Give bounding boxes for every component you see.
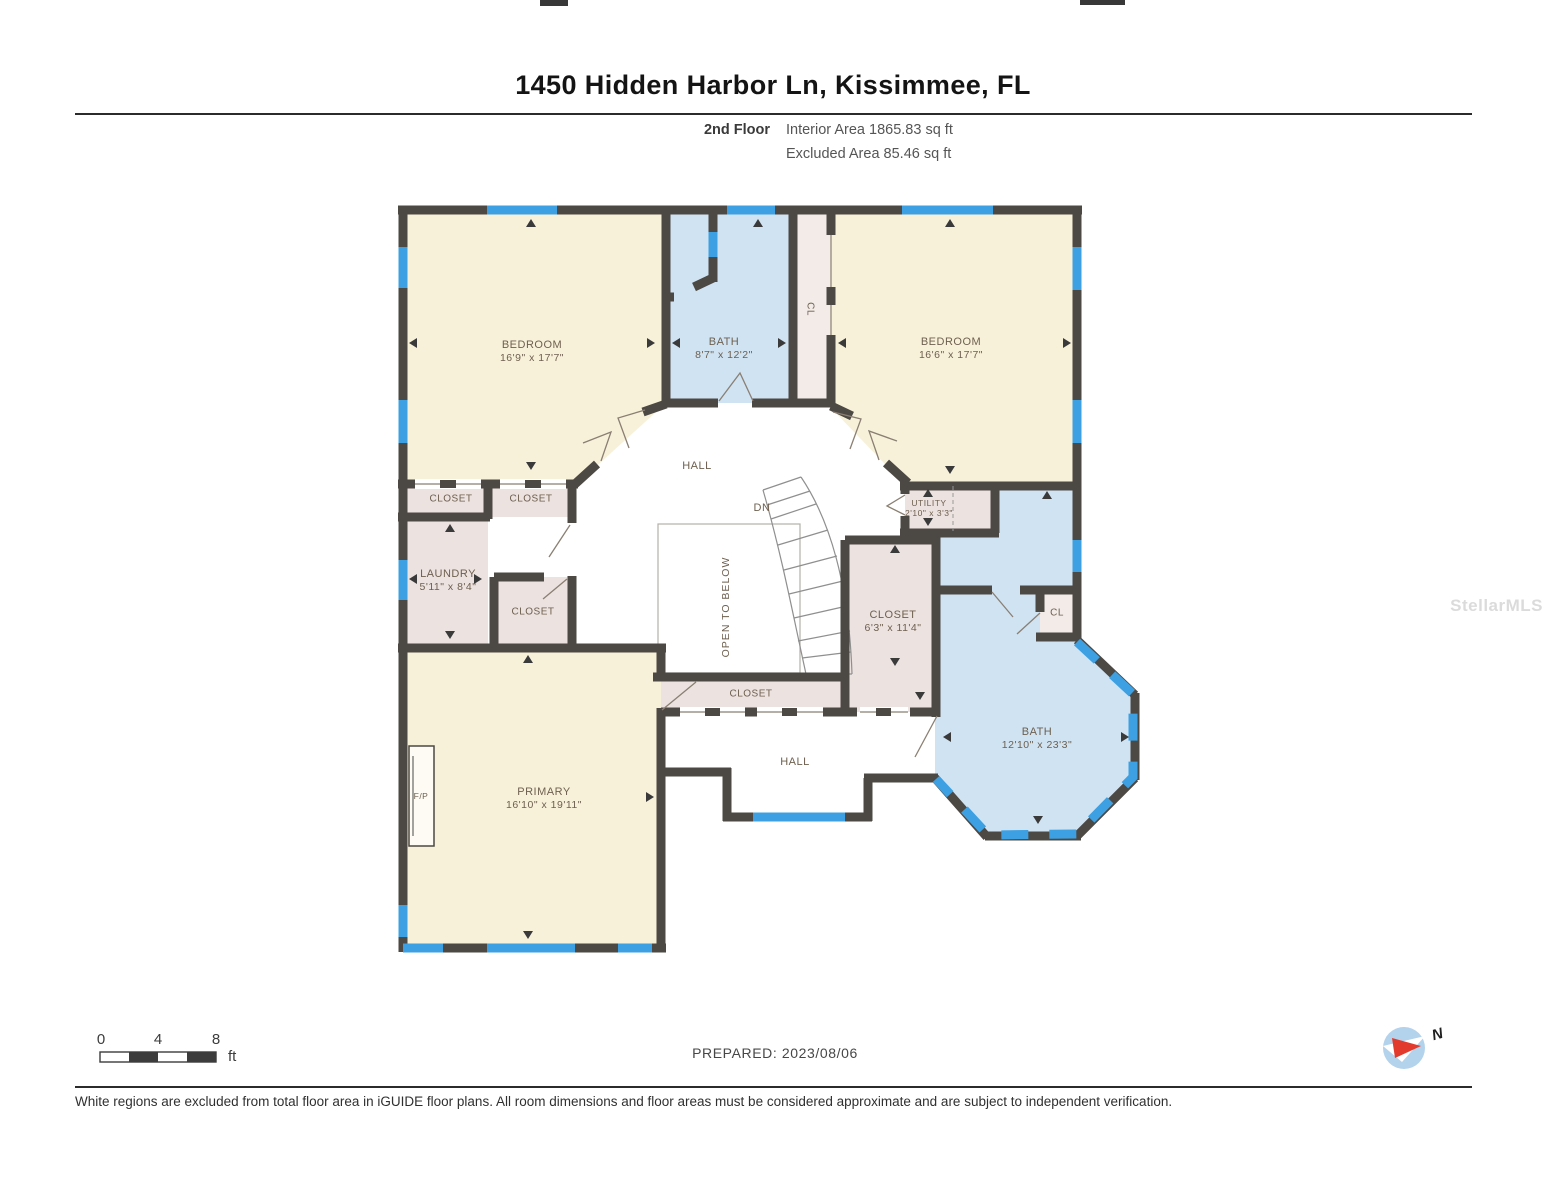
room-label-closet-d: CLOSET6'3" x 11'4" <box>865 608 922 636</box>
room-label-laundry: LAUNDRY5'11" x 8'4" <box>420 567 477 595</box>
room-label-bath-main: BATH12'10" x 23'3" <box>1002 725 1072 753</box>
scale-tick-4: 4 <box>154 1031 162 1048</box>
room-label-cl-right: CL <box>1050 607 1064 620</box>
room-label-utility: UTILITY2'10" x 3'3" <box>905 498 953 518</box>
scale-tick-0: 0 <box>97 1031 105 1048</box>
watermark: StellarMLS <box>1343 596 1543 616</box>
room-label-bath-top: BATH8'7" x 12'2" <box>695 335 753 363</box>
room-label-open-to-below: OPEN TO BELOW <box>720 557 734 658</box>
footer-rule <box>75 1086 1472 1088</box>
room-label-hall-lower: HALL <box>780 755 810 769</box>
room-label-primary: PRIMARY16'10" x 19'11" <box>506 785 582 813</box>
stairs-down-label: DN <box>754 501 771 515</box>
compass-icon <box>1383 1027 1425 1069</box>
scale-tick-8: 8 <box>212 1031 220 1048</box>
scale-bar <box>100 1052 216 1062</box>
room-label-closet-b: CLOSET <box>509 493 552 506</box>
scale-unit: ft <box>228 1048 236 1065</box>
room-label-closet-e: CLOSET <box>729 688 772 701</box>
room-label-cl-top: CL <box>804 302 817 316</box>
disclaimer-text: White regions are excluded from total fl… <box>75 1094 1495 1109</box>
floor-plan-drawing <box>0 0 1547 1200</box>
room-label-hall-upper: HALL <box>682 459 712 473</box>
room-label-closet-a: CLOSET <box>429 493 472 506</box>
room-label-closet-c: CLOSET <box>511 606 554 619</box>
prepared-date: PREPARED: 2023/08/06 <box>692 1045 858 1061</box>
room-label-bedroom-tr: BEDROOM16'6" x 17'7" <box>919 335 983 363</box>
fireplace-label: F/P <box>414 791 429 801</box>
room-label-bedroom-tl: BEDROOM16'9" x 17'7" <box>500 338 564 366</box>
floor-plan-page: 1450 Hidden Harbor Ln, Kissimmee, FL 2nd… <box>0 0 1547 1200</box>
